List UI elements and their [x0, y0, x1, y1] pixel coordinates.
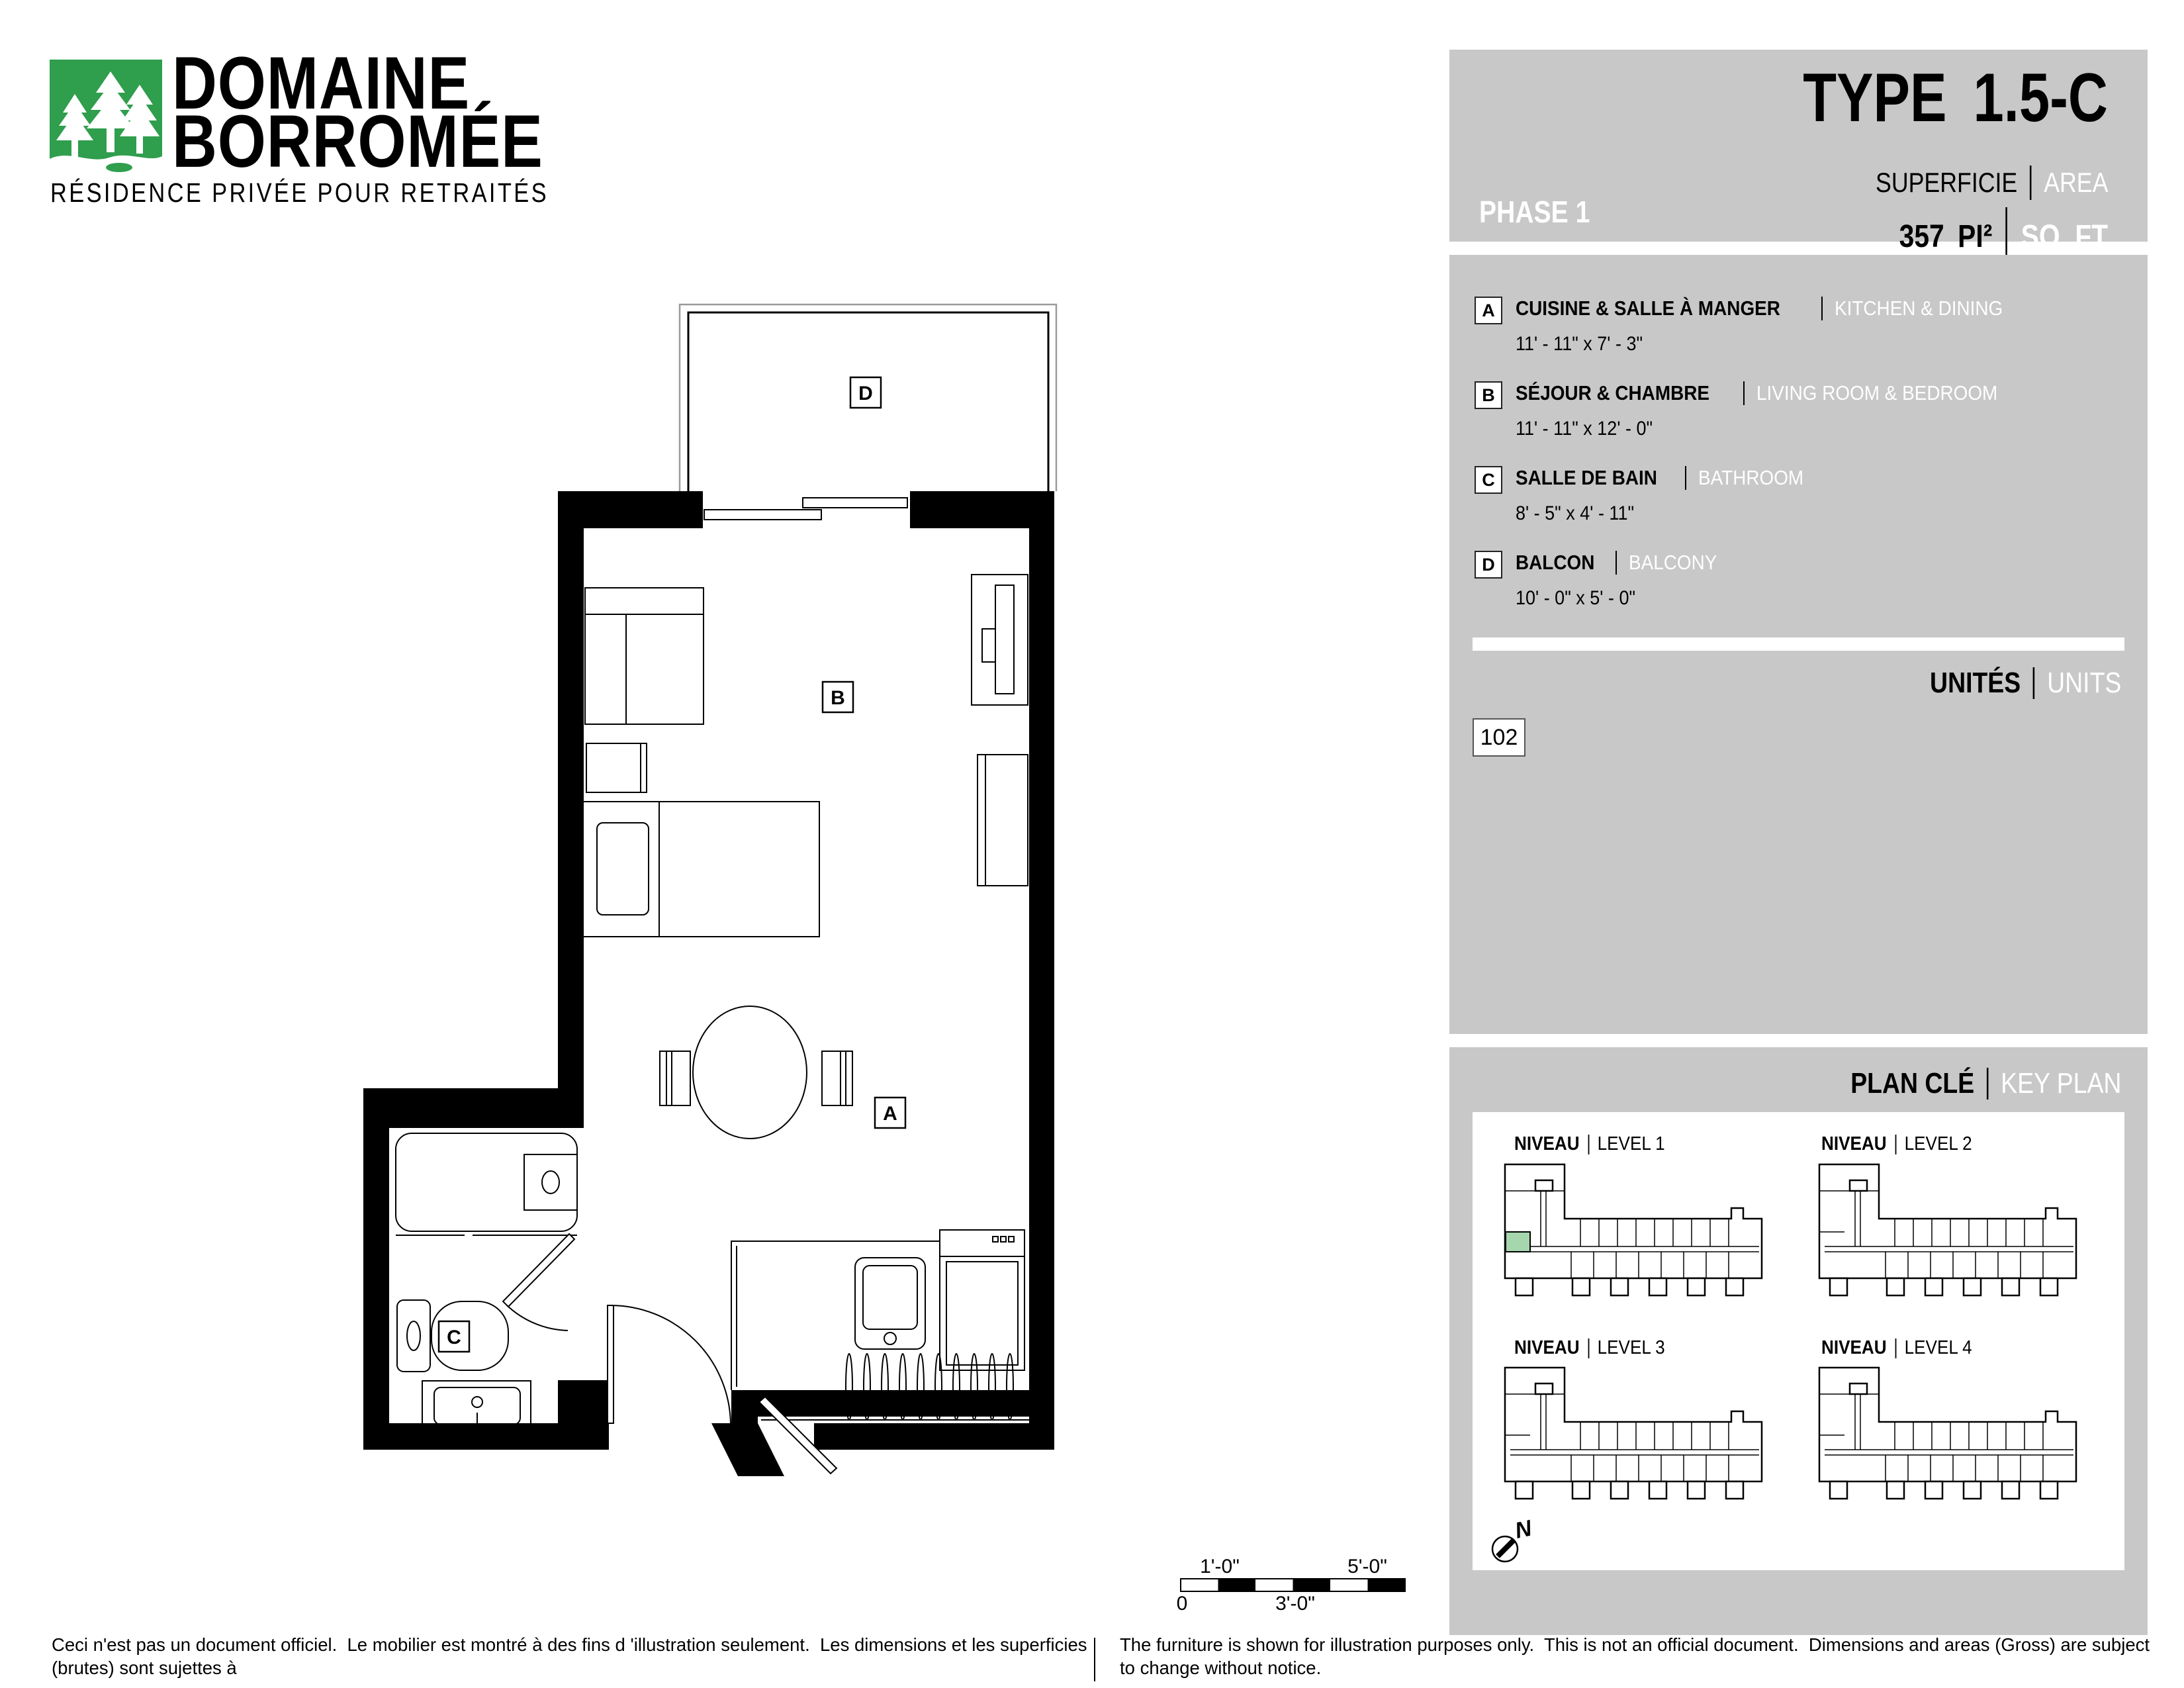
- divider-bar: [1588, 1135, 1589, 1154]
- divider-bar: [1743, 381, 1745, 405]
- legend-d-dims: 10' - 0" x 5' - 0": [1516, 587, 1635, 610]
- legend-panel: A CUISINE & SALLE À MANGER KITCHEN & DIN…: [1449, 255, 2148, 1034]
- legend-item-a: CUISINE & SALLE À MANGER KITCHEN & DININ…: [1516, 297, 2022, 320]
- legend-c-dims: 8' - 5" x 4' - 11": [1516, 502, 1634, 525]
- level-3-label: NIVEAU LEVEL 3: [1514, 1337, 1665, 1359]
- key-plan-panel: PLAN CLÉ KEY PLAN NIVEAU LEVEL 1 NIVEAU …: [1449, 1047, 2148, 1635]
- armchair: [585, 588, 704, 724]
- units-title-en: UNITS: [2047, 667, 2121, 700]
- legend-d-name-en: BALCONY: [1629, 551, 1717, 575]
- superficie-row: SUPERFICIE AREA: [1876, 165, 2108, 200]
- side-table: [586, 743, 647, 792]
- level-3-en: LEVEL 3: [1598, 1337, 1665, 1359]
- legend-a-name-en: KITCHEN & DINING: [1835, 297, 2003, 320]
- legend-b-name-en: LIVING ROOM & BEDROOM: [1756, 381, 1997, 405]
- bathroom-door: [503, 1234, 574, 1331]
- stove: [940, 1230, 1024, 1370]
- entry-door: [608, 1305, 731, 1425]
- scale-label-5ft: 5'-0": [1347, 1556, 1387, 1577]
- room-label-d: D: [858, 383, 873, 404]
- key-plan-title-en: KEY PLAN: [2001, 1067, 2121, 1100]
- disclaimer-en-line1: The furniture is shown for illustration …: [1120, 1634, 2155, 1678]
- kitchen-sink: [855, 1258, 925, 1349]
- scale-bar: 1'-0" 5'-0" 0 3'-0": [1171, 1549, 1416, 1618]
- sliding-door: [704, 498, 907, 520]
- room-label-b: B: [831, 687, 845, 709]
- key-plan-title-fr: PLAN CLÉ: [1850, 1067, 1974, 1100]
- logo-trees-icon: [50, 60, 162, 180]
- divider-bar: [1986, 1068, 1988, 1100]
- divider-bar: [1685, 466, 1686, 490]
- level-4-label: NIVEAU LEVEL 4: [1821, 1337, 1972, 1359]
- scale-label-3ft: 3'-0": [1275, 1593, 1315, 1615]
- room-label-c: C: [447, 1327, 461, 1348]
- room-label-a: A: [883, 1103, 897, 1125]
- floor-plan: D B A C: [331, 278, 1099, 1489]
- niveau-2-fr: NIVEAU: [1821, 1133, 1887, 1155]
- compass-n-label: N: [1513, 1517, 1535, 1544]
- divider-bar: [2030, 165, 2032, 200]
- key-plan-level-4: [1817, 1365, 2085, 1505]
- disclaimer-french: Ceci n'est pas un document officiel. Le …: [52, 1634, 1087, 1688]
- white-separator-bar: [1473, 637, 2124, 651]
- unit-number-box: 102: [1473, 718, 1525, 757]
- dining-chair-left: [660, 1051, 690, 1105]
- area-value: 357: [1899, 218, 1944, 255]
- dining-chair-right: [822, 1051, 852, 1105]
- area-unit-en: SQ. FT: [2021, 218, 2108, 255]
- bed: [583, 802, 819, 937]
- legend-b-name-fr: SÉJOUR & CHAMBRE: [1516, 381, 1709, 405]
- type-value: 1.5-C: [1974, 59, 2108, 138]
- legend-letter-d: D: [1475, 551, 1502, 579]
- kitchen-counter: [731, 1241, 940, 1390]
- key-plan-canvas: NIVEAU LEVEL 1 NIVEAU LEVEL 2 NIVEAU LEV…: [1473, 1112, 2124, 1570]
- niveau-4-fr: NIVEAU: [1821, 1337, 1887, 1359]
- divider-bar: [1588, 1338, 1589, 1358]
- key-plan-title-row: PLAN CLÉ KEY PLAN: [1850, 1067, 2121, 1100]
- legend-letter-d-text: D: [1482, 555, 1495, 575]
- units-title-row: UNITÉS UNITS: [1930, 667, 2121, 700]
- level-2-label: NIVEAU LEVEL 2: [1821, 1133, 1972, 1155]
- niveau-3-fr: NIVEAU: [1514, 1337, 1580, 1359]
- legend-letter-a-text: A: [1482, 301, 1495, 321]
- legend-item-b: SÉJOUR & CHAMBRE LIVING ROOM & BEDROOM: [1516, 381, 2024, 405]
- divider-bar: [2033, 667, 2035, 699]
- unit-number: 102: [1480, 725, 1518, 751]
- divider-bar: [1821, 297, 1823, 320]
- tv-stand: [972, 575, 1028, 705]
- disclaimer-fr-line1: Ceci n'est pas un document officiel. Le …: [52, 1634, 1092, 1678]
- legend-letter-c-text: C: [1482, 470, 1495, 491]
- legend-letter-b-text: B: [1482, 385, 1495, 406]
- header-panel: PHASE 1 TYPE 1.5-C SUPERFICIE AREA 357 P…: [1449, 50, 2148, 242]
- type-label: TYPE: [1803, 59, 1946, 138]
- bathtub: [396, 1133, 577, 1235]
- area-unit-fr: PI²: [1958, 218, 1992, 255]
- scale-label-0: 0: [1177, 1593, 1188, 1615]
- disclaimer-english: The furniture is shown for illustration …: [1120, 1634, 2152, 1688]
- key-plan-level-1: [1502, 1162, 1770, 1302]
- legend-letter-c: C: [1475, 466, 1502, 494]
- highlighted-unit-102: [1506, 1232, 1530, 1252]
- legend-b-dims: 11' - 11" x 12' - 0": [1516, 418, 1653, 440]
- dresser: [978, 755, 1028, 886]
- legend-c-name-en: BATHROOM: [1698, 466, 1803, 490]
- dining-table: [693, 1006, 807, 1139]
- footer-divider: [1094, 1638, 1095, 1681]
- level-1-label: NIVEAU LEVEL 1: [1514, 1133, 1665, 1155]
- units-title-fr: UNITÉS: [1930, 667, 2021, 700]
- area-label: AREA: [2044, 167, 2108, 199]
- divider-bar: [1895, 1338, 1896, 1358]
- floorplan-sheet: DOMAINE BORROMÉE RÉSIDENCE PRIVÉE POUR R…: [0, 0, 2184, 1688]
- phase-label: PHASE 1: [1479, 194, 1590, 230]
- level-2-en: LEVEL 2: [1905, 1133, 1972, 1155]
- level-4-en: LEVEL 4: [1905, 1337, 1972, 1359]
- scale-label-1ft: 1'-0": [1200, 1556, 1240, 1577]
- legend-d-name-fr: BALCON: [1516, 551, 1594, 575]
- legend-a-dims: 11' - 11" x 7' - 3": [1516, 333, 1643, 355]
- unit-type-title: TYPE 1.5-C: [1803, 59, 2108, 138]
- niveau-1-fr: NIVEAU: [1514, 1133, 1580, 1155]
- brand-name-line2: BORROMÉE: [172, 114, 543, 169]
- legend-item-c: SALLE DE BAIN BATHROOM: [1516, 466, 1815, 490]
- level-1-en: LEVEL 1: [1598, 1133, 1665, 1155]
- bathroom-sink: [422, 1381, 531, 1429]
- north-compass-icon: N: [1476, 1517, 1562, 1569]
- divider-bar: [1895, 1135, 1896, 1154]
- legend-a-name-fr: CUISINE & SALLE À MANGER: [1516, 297, 1780, 320]
- legend-letter-a: A: [1475, 297, 1502, 324]
- divider-bar: [1615, 551, 1617, 575]
- key-plan-level-3: [1502, 1365, 1770, 1505]
- key-plan-level-2: [1817, 1162, 2085, 1302]
- legend-c-name-fr: SALLE DE BAIN: [1516, 466, 1657, 490]
- legend-item-d: BALCON BALCONY: [1516, 551, 1727, 575]
- brand-tagline: RÉSIDENCE PRIVÉE POUR RETRAITÉS: [50, 177, 549, 209]
- legend-letter-b: B: [1475, 381, 1502, 409]
- superficie-label: SUPERFICIE: [1876, 167, 2017, 199]
